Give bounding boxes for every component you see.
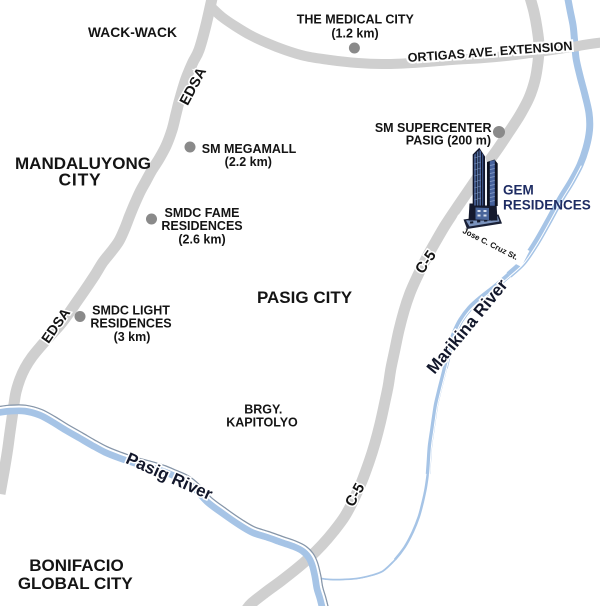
svg-text:THE MEDICAL CITY: THE MEDICAL CITY <box>297 12 415 26</box>
svg-text:BRGY.: BRGY. <box>244 403 282 417</box>
svg-text:WACK-WACK: WACK-WACK <box>88 25 177 40</box>
svg-text:CITY: CITY <box>58 170 101 190</box>
svg-text:PASIG (200 m): PASIG (200 m) <box>406 134 491 148</box>
svg-text:GEM: GEM <box>503 183 534 198</box>
svg-text:SM MEGAMALL: SM MEGAMALL <box>202 142 297 156</box>
svg-text:BONIFACIO: BONIFACIO <box>29 556 123 575</box>
svg-text:SMDC LIGHT: SMDC LIGHT <box>92 304 170 318</box>
svg-text:(2.2 km): (2.2 km) <box>225 155 272 169</box>
svg-text:RESIDENCES: RESIDENCES <box>503 198 591 213</box>
svg-text:(2.6 km): (2.6 km) <box>178 233 225 247</box>
svg-text:(3 km): (3 km) <box>114 330 151 344</box>
svg-text:KAPITOLYO: KAPITOLYO <box>226 416 298 430</box>
svg-text:(1.2 km): (1.2 km) <box>331 27 378 41</box>
svg-text:PASIG CITY: PASIG CITY <box>257 288 353 307</box>
svg-text:RESIDENCES: RESIDENCES <box>90 317 171 331</box>
svg-text:SMDC FAME: SMDC FAME <box>165 206 240 220</box>
svg-text:GLOBAL CITY: GLOBAL CITY <box>18 574 134 593</box>
svg-text:RESIDENCES: RESIDENCES <box>161 219 242 233</box>
